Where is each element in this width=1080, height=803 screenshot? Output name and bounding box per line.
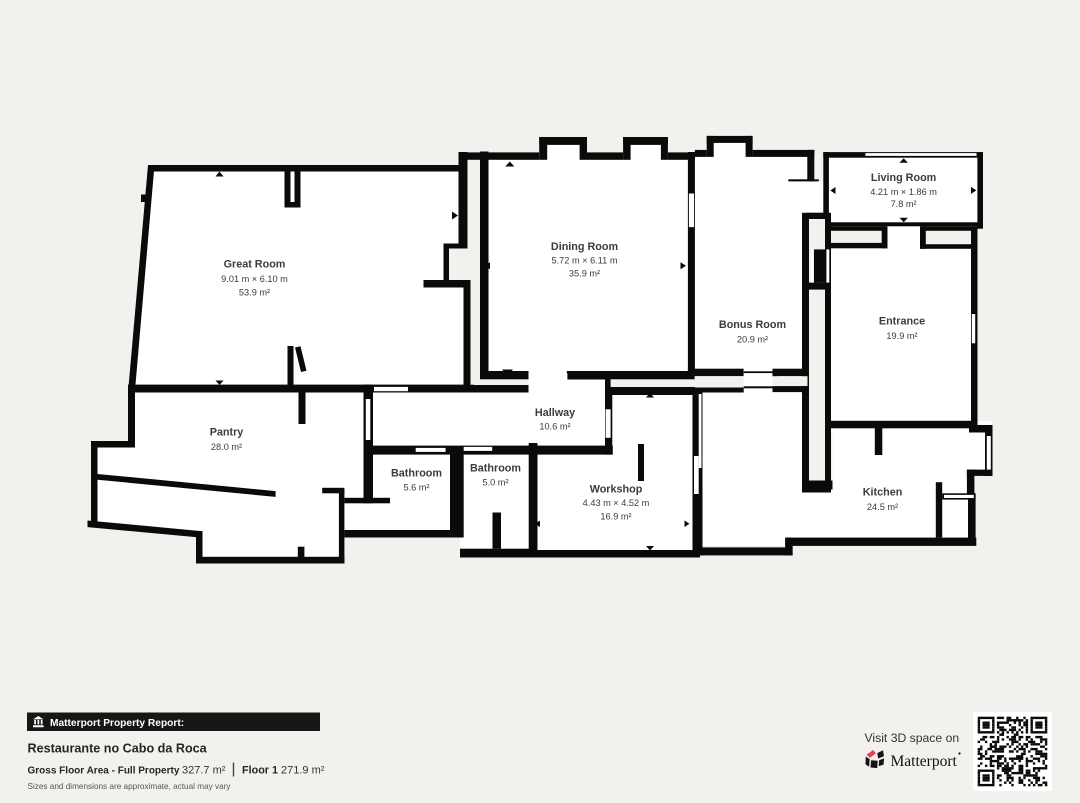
svg-text:7.8 m²: 7.8 m²: [891, 199, 917, 209]
svg-text:Restaurante no Cabo da Roca: Restaurante no Cabo da Roca: [28, 742, 208, 756]
svg-text:16.9 m²: 16.9 m²: [600, 512, 631, 522]
svg-text:5.6 m²: 5.6 m²: [403, 483, 429, 493]
svg-text:Visit 3D space on: Visit 3D space on: [865, 731, 960, 745]
svg-text:19.9 m²: 19.9 m²: [886, 331, 917, 341]
svg-text:Kitchen: Kitchen: [863, 487, 903, 499]
svg-text:Sizes and dimensions are appro: Sizes and dimensions are approximate, ac…: [28, 782, 232, 791]
svg-text:Bathroom: Bathroom: [391, 468, 442, 480]
svg-text:28.0 m²: 28.0 m²: [211, 442, 242, 452]
svg-text:Great Room: Great Room: [224, 259, 286, 271]
svg-text:4.43 m × 4.52 m: 4.43 m × 4.52 m: [583, 498, 650, 508]
svg-text:10.6 m²: 10.6 m²: [539, 421, 570, 431]
svg-text:Floor 1: Floor 1: [242, 765, 278, 777]
svg-text:5.0 m²: 5.0 m²: [482, 477, 508, 487]
svg-text:4.21 m × 1.86 m: 4.21 m × 1.86 m: [870, 187, 937, 197]
svg-text:24.5 m²: 24.5 m²: [867, 502, 898, 512]
svg-text:Matterport Property Report:: Matterport Property Report:: [50, 718, 184, 729]
svg-text:Living Room: Living Room: [871, 172, 936, 184]
svg-text:20.9 m²: 20.9 m²: [737, 334, 768, 344]
svg-text:35.9 m²: 35.9 m²: [569, 269, 600, 279]
svg-text:Bathroom: Bathroom: [470, 462, 521, 474]
svg-text:53.9 m²: 53.9 m²: [239, 288, 270, 298]
svg-text:Hallway: Hallway: [535, 407, 575, 419]
svg-text:9.01 m × 6.10 m: 9.01 m × 6.10 m: [221, 274, 288, 284]
svg-text:Workshop: Workshop: [590, 484, 643, 496]
svg-text:271.9 m²: 271.9 m²: [281, 765, 325, 777]
svg-text:Matterport: Matterport: [891, 753, 958, 770]
svg-text:5.72 m × 6.11 m: 5.72 m × 6.11 m: [552, 256, 618, 266]
svg-text:Entrance: Entrance: [879, 316, 925, 328]
svg-text:Gross Floor Area - Full Proper: Gross Floor Area - Full Property: [28, 766, 180, 777]
svg-text:327.7 m²: 327.7 m²: [182, 765, 226, 777]
svg-text:Bonus Room: Bonus Room: [719, 319, 786, 331]
svg-text:Dining Room: Dining Room: [551, 241, 618, 253]
svg-text:Pantry: Pantry: [210, 426, 244, 438]
